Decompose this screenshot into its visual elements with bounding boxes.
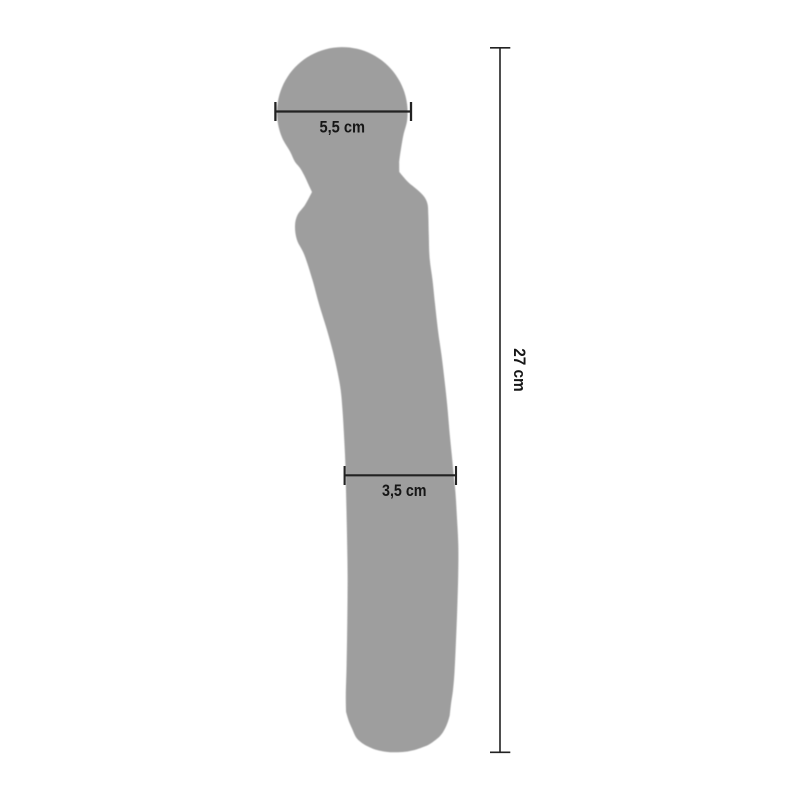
svg-text:27 cm: 27 cm <box>510 348 529 392</box>
svg-text:3,5 cm: 3,5 cm <box>382 481 427 500</box>
svg-text:5,5 cm: 5,5 cm <box>320 118 366 137</box>
